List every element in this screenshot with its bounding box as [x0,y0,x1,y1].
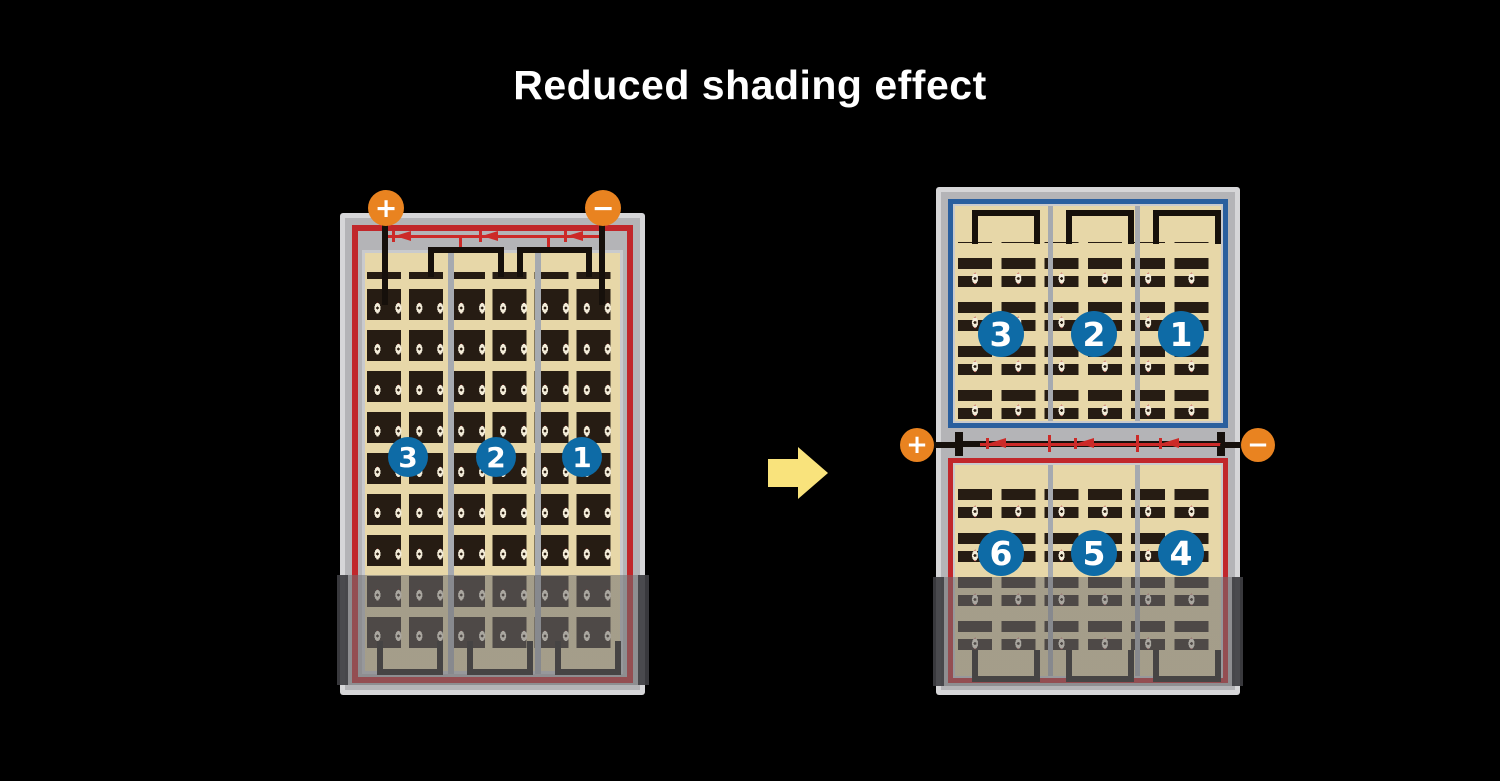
diode-tap-wire [1136,435,1139,452]
bypass-diode-icon [990,438,1006,448]
right-arrow-icon [798,447,828,499]
right-arrow-icon [768,459,798,487]
positive-lead-wire [382,221,388,305]
string-badge: 1 [1158,311,1204,357]
string-bridge-wire [428,247,504,277]
string-badge: 4 [1158,530,1204,576]
string-badge: 5 [1071,530,1117,576]
shadow-overlay [933,577,1243,686]
positive-terminal-icon: + [900,428,934,462]
string-return-wire [972,210,1040,244]
positive-lead-wire [930,442,958,448]
bypass-bus-line [980,443,1232,446]
diode-tap-wire [1048,435,1051,452]
string-return-wire [1153,210,1221,244]
bypass-diode-icon [567,231,583,241]
string-return-wire [1066,210,1134,244]
negative-terminal-icon: − [585,190,621,226]
negative-lead-wire [599,221,605,305]
shadow-overlay [337,575,649,685]
string-bridge-wire [517,247,592,277]
string-badge: 3 [978,311,1024,357]
string-badge: 2 [1071,311,1117,357]
bypass-diode-icon [1078,438,1094,448]
diode-cathode-bar-icon [1159,438,1162,449]
diode-cathode-bar-icon [986,438,989,449]
diode-cathode-bar-icon [1074,438,1077,449]
string-badge: 2 [476,437,516,477]
bypass-diode-icon [482,231,498,241]
string-badge: 6 [978,530,1024,576]
reduced-shading-diagram: 3 2 1 3 2 1 6 5 4 + − + − Reduced shadin… [0,0,1500,781]
string-divider [1048,206,1053,421]
positive-terminal-icon: + [368,190,404,226]
string-badge: 3 [388,437,428,477]
bypass-diode-icon [395,231,411,241]
string-badge: 1 [562,437,602,477]
page-title: Reduced shading effect [0,62,1500,109]
negative-terminal-icon: − [1241,428,1275,462]
bypass-diode-icon [1163,438,1179,448]
string-divider [1135,206,1140,421]
